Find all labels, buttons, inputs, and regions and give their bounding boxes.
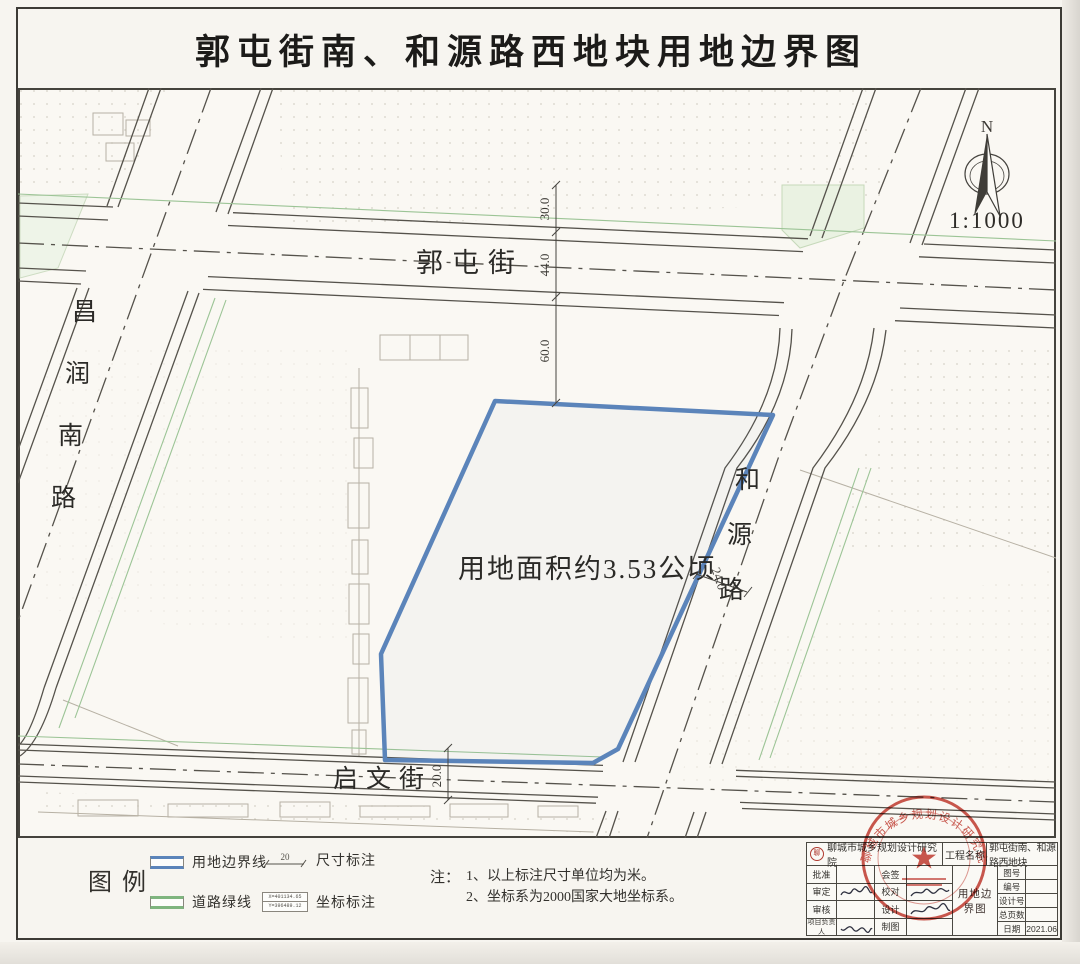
value-serial-no (1026, 880, 1057, 894)
institute-logo-icon: 聊 (810, 847, 824, 861)
sheet-info-grid: 图号 编号 设计号 总页数 日期 2021.06 (998, 866, 1057, 936)
green-line-swatch (150, 896, 184, 909)
label-examine: 审定 (807, 884, 837, 902)
map-notes: 注： 1、以上标注尺寸单位均为米。 2、坐标系为2000国家大地坐标系。 (430, 866, 683, 908)
label-review: 审核 (807, 901, 837, 919)
legend-title: 图例 (88, 862, 156, 897)
svg-text:44.0: 44.0 (537, 254, 552, 277)
legend-item-coordinate: X=401134.65 Y=396489.12 坐标标注 (262, 892, 376, 912)
svg-text:源: 源 (727, 521, 752, 549)
svg-text:60.0: 60.0 (537, 340, 552, 363)
legend-item-boundary: 用地边界线 (150, 852, 267, 872)
value-total-pages (1026, 908, 1057, 922)
svg-text:24.0: 24.0 (708, 565, 730, 591)
dimension-sample-icon: 20 (262, 851, 308, 869)
north-label: N (981, 117, 993, 136)
label-guotun-street: 郭屯街 (416, 248, 524, 278)
parcel-area-label: 用地面积约3.53公顷 (458, 554, 716, 584)
svg-text:润: 润 (65, 360, 90, 388)
svg-text:南: 南 (58, 422, 83, 450)
legend-item-dimension: 20 尺寸标注 (262, 850, 376, 870)
value-date: 2021.06 (1026, 922, 1057, 936)
compass-needle-light (987, 134, 1000, 216)
note-2: 2、坐标系为2000国家大地坐标系。 (466, 887, 683, 908)
official-red-seal: 聊城市城乡规划设计研究院 (842, 782, 1006, 938)
compass-needle-dark (974, 134, 987, 216)
north-compass: N 1:1000 (949, 117, 1025, 233)
value-figure-no (1026, 866, 1057, 880)
label-approve: 批准 (807, 866, 837, 884)
legend-item-greenline: 道路绿线 (150, 892, 252, 912)
svg-text:路: 路 (51, 484, 76, 512)
svg-text:30.0: 30.0 (537, 198, 552, 221)
svg-text:20: 20 (281, 852, 291, 862)
notes-label: 注： (430, 866, 460, 908)
svg-text:和: 和 (735, 466, 760, 494)
coordinate-sample-icon: X=401134.65 Y=396489.12 (262, 892, 308, 912)
scanned-drawing-sheet: 郭屯街南、和源路西地块用地边界图 (0, 0, 1080, 964)
label-project-lead: 项目负责人 (807, 919, 837, 937)
svg-text:20.0: 20.0 (429, 765, 444, 788)
svg-text:昌: 昌 (72, 299, 97, 326)
site-map: 用地面积约3.53公顷 郭屯街 启文街 昌 润 南 路 和 源 路 (18, 88, 1056, 838)
label-qiwen-street: 启文街 (333, 765, 432, 793)
seal-star-icon (912, 846, 936, 869)
page-title: 郭屯街南、和源路西地块用地边界图 (0, 24, 1062, 75)
scale-text: 1:1000 (949, 208, 1025, 233)
value-design-no (1026, 894, 1057, 908)
boundary-line-swatch (150, 856, 184, 869)
note-1: 1、以上标注尺寸单位均为米。 (466, 866, 683, 887)
